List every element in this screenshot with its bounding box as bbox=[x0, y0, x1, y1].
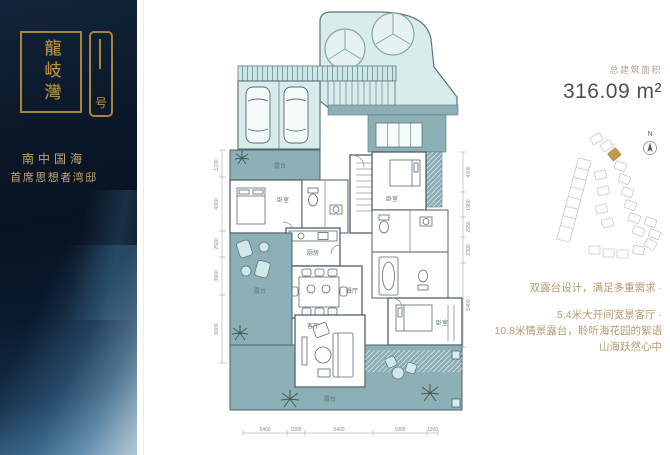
bedroom-3-label: 卧室 bbox=[436, 319, 448, 327]
dim-label: 6000 bbox=[214, 323, 220, 334]
living-label: 客厅 bbox=[307, 322, 319, 330]
floor-plan: 露台 卧室 bbox=[180, 5, 530, 450]
compass-n-label: N bbox=[647, 131, 652, 138]
main-terrace-label: 露台 bbox=[324, 395, 336, 403]
bed-icon bbox=[396, 305, 432, 331]
logo-seal-icon: 龍岐灣 bbox=[20, 31, 82, 113]
bedroom-1: 卧室 bbox=[230, 180, 302, 233]
kitchen-label: 厨房 bbox=[307, 249, 319, 257]
bathroom-upper bbox=[302, 180, 348, 233]
logo-number-label: 号 bbox=[91, 94, 111, 111]
compass-icon: N bbox=[644, 131, 657, 155]
highlighted-building bbox=[608, 148, 621, 161]
dim-label: 3900 bbox=[214, 270, 220, 281]
dim-label: 4300 bbox=[214, 198, 220, 209]
toilet-icon bbox=[379, 215, 389, 233]
side-deck-label: 露台 bbox=[254, 287, 266, 295]
feature-list: 双露台设计，满足多重需求 · 5.4米大开间宽景客厅 · 10.8米情景露台，聆… bbox=[495, 280, 662, 355]
toilet-icon bbox=[418, 270, 428, 290]
pergola bbox=[238, 66, 396, 81]
floor-plan-drawing: 露台 卧室 bbox=[180, 5, 530, 450]
tagline-secondary: 首席思想者湾邸 bbox=[0, 169, 108, 185]
exterior-stairs bbox=[328, 81, 395, 106]
dim-label: 1700 bbox=[214, 159, 220, 170]
tv-bench-icon bbox=[302, 337, 307, 365]
bay-window bbox=[376, 123, 422, 147]
bed-icon bbox=[237, 188, 265, 224]
page: 龍岐灣 号 南中国海 首席思想者湾邸 bbox=[0, 0, 670, 455]
dimension-left: 1700 4300 2500 3900 6000 bbox=[214, 150, 226, 363]
dim-label: 1900 bbox=[394, 427, 405, 433]
site-buildings bbox=[589, 133, 661, 258]
logo-number-one-icon bbox=[99, 39, 101, 69]
feature-line: 双露台设计，满足多重需求 · bbox=[495, 280, 662, 296]
dim-label: 1500 bbox=[290, 427, 301, 433]
brand-sidebar: 龍岐灣 号 南中国海 首席思想者湾邸 bbox=[0, 0, 137, 455]
site-building-row bbox=[557, 158, 591, 243]
area-value: 316.09 m² bbox=[563, 80, 662, 104]
feature-line: 山海跃然心中 bbox=[495, 339, 662, 355]
bedroom-3: 卧室 bbox=[388, 298, 462, 345]
dim-label: 1200 bbox=[427, 427, 438, 433]
kitchen: 厨房 bbox=[286, 228, 340, 266]
dim-label: 2300 bbox=[466, 244, 472, 255]
site-location-map: N bbox=[550, 126, 670, 266]
dim-label: 2500 bbox=[214, 238, 220, 249]
deck-post bbox=[452, 399, 460, 407]
sink-icon bbox=[420, 217, 432, 226]
living-room: 客厅 bbox=[295, 315, 365, 387]
dining-room: 餐厅 bbox=[286, 266, 362, 318]
feature-line: 5.4米大开间宽景客厅 · bbox=[495, 307, 662, 323]
brand-logo: 龍岐灣 号 bbox=[20, 31, 113, 117]
garage bbox=[238, 81, 320, 149]
bathroom-right bbox=[372, 210, 448, 298]
dim-label: 5400 bbox=[333, 427, 344, 433]
terrace-top: 露台 bbox=[230, 150, 320, 180]
dim-label: 2250 bbox=[466, 221, 472, 232]
sidebar-edge-line bbox=[143, 0, 144, 455]
deck-post bbox=[452, 351, 460, 359]
logo-number-frame: 号 bbox=[89, 31, 113, 117]
dining-label: 餐厅 bbox=[346, 287, 358, 295]
bedroom-2-label: 卧室 bbox=[386, 195, 398, 203]
dim-label: 5400 bbox=[259, 427, 270, 433]
bed-icon bbox=[390, 160, 420, 186]
dim-label: 1950 bbox=[466, 199, 472, 210]
dim-label: 4200 bbox=[466, 166, 472, 177]
bathtub-icon bbox=[379, 257, 398, 295]
ocean-wave bbox=[0, 245, 137, 455]
tagline-primary: 南中国海 bbox=[0, 150, 108, 167]
dimension-bottom: 5400 1500 5400 1900 1200 bbox=[243, 427, 438, 436]
dim-label: 5400 bbox=[466, 299, 472, 310]
feature-line: 10.8米情景露台，聆听海花园的絮语 bbox=[495, 323, 662, 339]
sink-icon bbox=[330, 205, 342, 214]
total-area-block: 总建筑面积 316.09 m² bbox=[563, 63, 662, 104]
toilet-icon bbox=[308, 188, 318, 206]
side-deck: 露台 bbox=[230, 233, 292, 345]
terrace-top-label: 露台 bbox=[274, 162, 286, 170]
bedroom-1-label: 卧室 bbox=[277, 196, 289, 204]
area-label: 总建筑面积 bbox=[563, 63, 662, 76]
